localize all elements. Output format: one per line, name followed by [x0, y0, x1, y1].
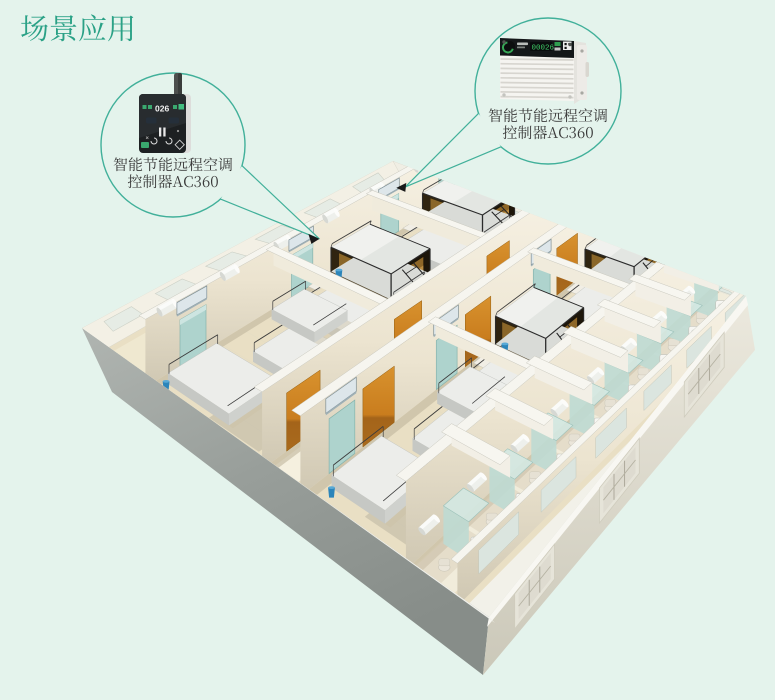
svg-text:00026: 00026: [532, 45, 555, 53]
svg-text:026: 026: [155, 104, 169, 114]
